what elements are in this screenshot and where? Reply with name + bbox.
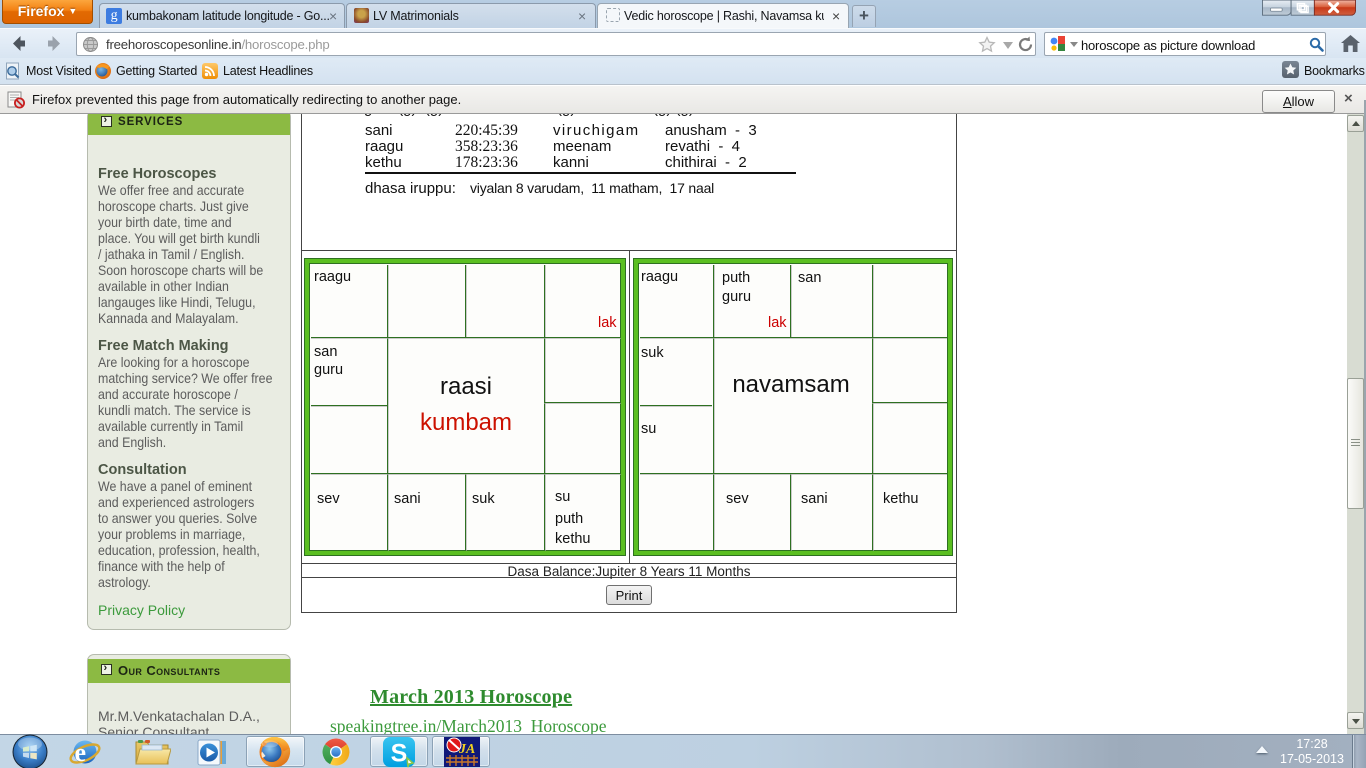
svg-text:e: e [75,738,87,767]
svg-text:JA: JA [458,742,475,757]
svg-text:S: S [391,740,408,768]
